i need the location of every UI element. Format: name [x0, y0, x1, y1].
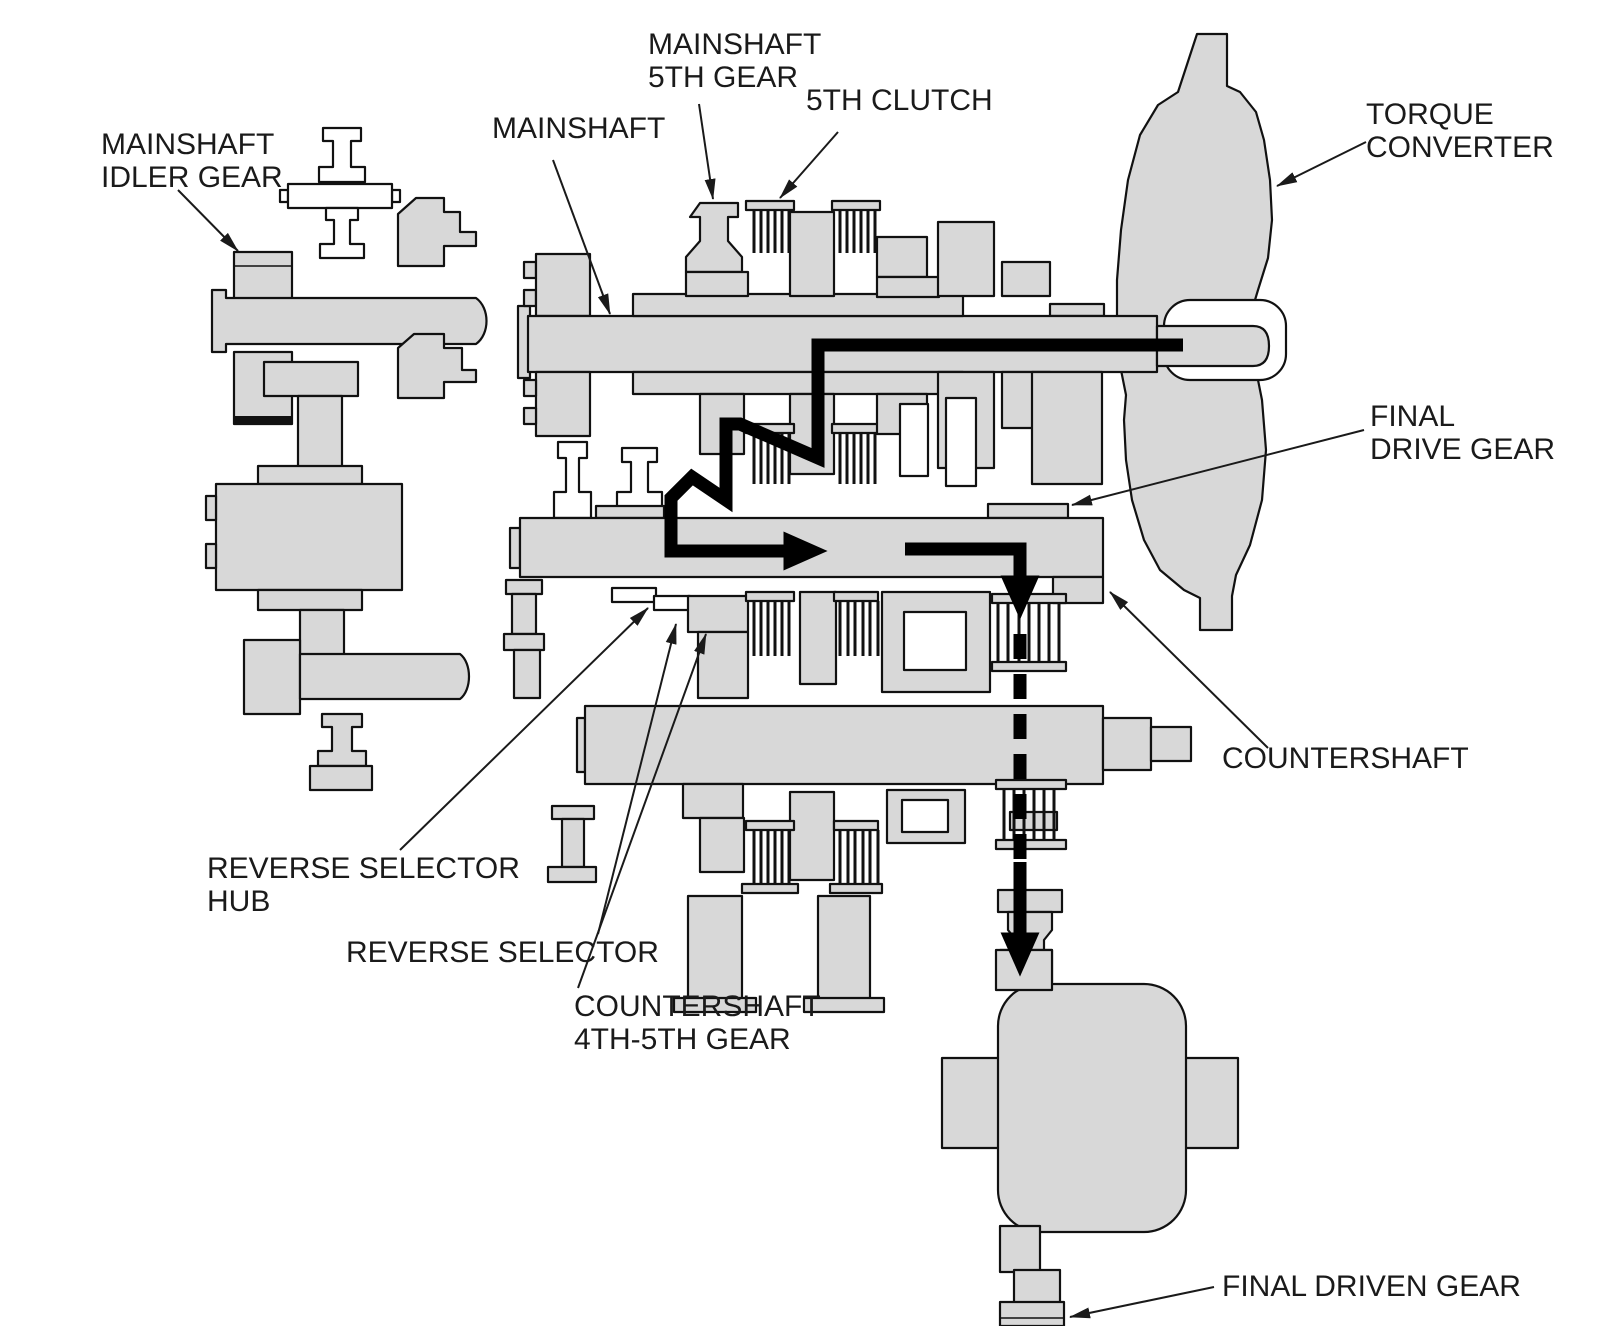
leader-final-driven-gear [1070, 1287, 1214, 1317]
label-reverse-selector: REVERSE SELECTOR [346, 936, 659, 969]
label-5th-clutch: 5TH CLUTCH [806, 84, 993, 117]
label-mainshaft: MAINSHAFT [492, 112, 665, 145]
leader-5th-clutch [780, 132, 838, 198]
differential-body [998, 984, 1186, 1232]
reverse-selector-part [654, 596, 690, 610]
label-mainshaft-idler-gear: MAINSHAFT IDLER GEAR [101, 128, 283, 194]
leader-mainshaft-5th-gear [699, 104, 713, 199]
label-mainshaft-5th-gear: MAINSHAFT 5TH GEAR [648, 28, 821, 94]
label-countershaft-4th-5th-gear: COUNTERSHAFT 4TH-5TH GEAR [574, 990, 821, 1056]
countershaft-4th-5th-gear-part [688, 596, 748, 632]
countershaft-assembly [504, 504, 1103, 698]
mainshaft-idler-gear-assembly [206, 128, 487, 790]
label-reverse-selector-hub: REVERSE SELECTOR HUB [207, 852, 520, 918]
leader-torque-converter [1277, 142, 1366, 186]
label-torque-converter: TORQUE CONVERTER [1366, 98, 1554, 164]
final-drive-gear-part [988, 504, 1068, 518]
label-final-drive-gear: FINAL DRIVE GEAR [1370, 400, 1555, 466]
label-countershaft: COUNTERSHAFT [1222, 742, 1469, 775]
leader-mainshaft-idler-gear [178, 190, 238, 251]
final-driven-gear-assembly [942, 950, 1238, 1326]
transmission-diagram: MAINSHAFT IDLER GEAR MAINSHAFT MAINSHAFT… [0, 0, 1614, 1326]
transmission-drawing [0, 0, 1614, 1326]
label-final-driven-gear: FINAL DRIVEN GEAR [1222, 1270, 1521, 1303]
reverse-selector-hub-part [612, 588, 656, 602]
final-driven-gear-part [1000, 1302, 1064, 1326]
